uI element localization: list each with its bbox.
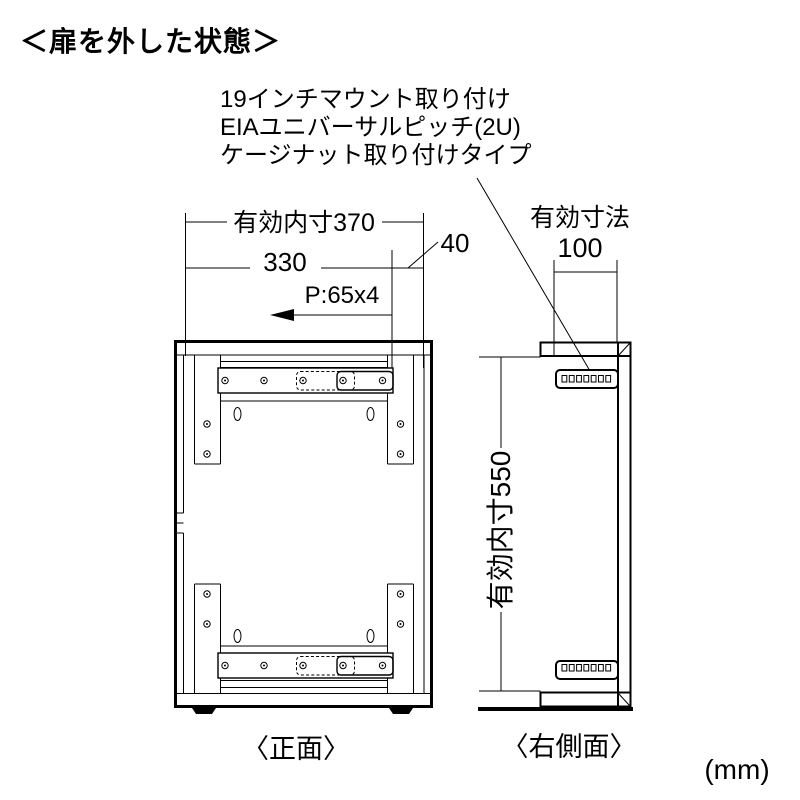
dimension-inner-height-550: 有効内寸550 [479, 357, 541, 691]
side-view-label: 〈右側面〉 [502, 732, 637, 762]
side-cabinet-body [541, 343, 631, 708]
side-view: 有効寸法 100 有効内寸550 [478, 204, 637, 762]
technical-drawing: ＜扉を外した状態＞ 19インチマウント取り付け EIAユニバーサルピッチ(2U)… [0, 0, 800, 800]
dimension-text-330: 330 [263, 247, 306, 277]
front-cabinet-outer-frame [176, 342, 432, 707]
unit-label: (mm) [704, 754, 769, 785]
corner-miter-bottom [618, 693, 630, 706]
dimension-text-pitch: P:65x4 [305, 282, 380, 309]
drawing-page: ＜扉を外した状態＞ 19インチマウント取り付け EIAユニバーサルピッチ(2U)… [0, 0, 800, 800]
dimension-pitch: P:65x4 [270, 282, 392, 321]
annotation-line-3: ケージナット取り付けタイプ [220, 142, 532, 169]
front-cabinet-inner-walls [177, 355, 430, 694]
dimension-text-40: 40 [441, 228, 470, 258]
pitch-arrowhead [270, 309, 294, 321]
bottom-mounting-bar [218, 653, 393, 678]
bottom-side-rail [556, 661, 618, 679]
dimension-offset-40: 40 [408, 228, 469, 268]
annotation-line-1: 19インチマウント取り付け [220, 86, 511, 113]
dimension-text-depth-label: 有効寸法 [530, 204, 630, 232]
annotation-line-2: EIAユニバーサルピッチ(2U) [220, 114, 521, 141]
corner-miter-top [618, 344, 630, 357]
corner-oval-slots [234, 408, 374, 643]
top-mounting-bar [218, 368, 393, 393]
dimension-text-depth-value: 100 [557, 233, 602, 263]
side-mounting-rails [556, 370, 618, 679]
cabinet-feet [192, 708, 413, 714]
top-side-rail [556, 370, 618, 388]
dimension-text-550: 有効内寸550 [485, 451, 516, 610]
rail-post-holes [204, 421, 404, 627]
left-wall-notch [177, 513, 184, 533]
front-view: 有効内寸370 330 40 P:65x4 [176, 209, 470, 764]
dimension-depth-100: 有効寸法 100 [530, 204, 630, 356]
frame-member-lines [221, 362, 388, 688]
page-title: ＜扉を外した状態＞ [20, 25, 281, 57]
front-view-label: 〈正面〉 [242, 734, 350, 764]
mounting-rail-posts [195, 355, 414, 694]
dimension-text-370: 有効内寸370 [233, 209, 375, 237]
back-panel [618, 343, 631, 708]
